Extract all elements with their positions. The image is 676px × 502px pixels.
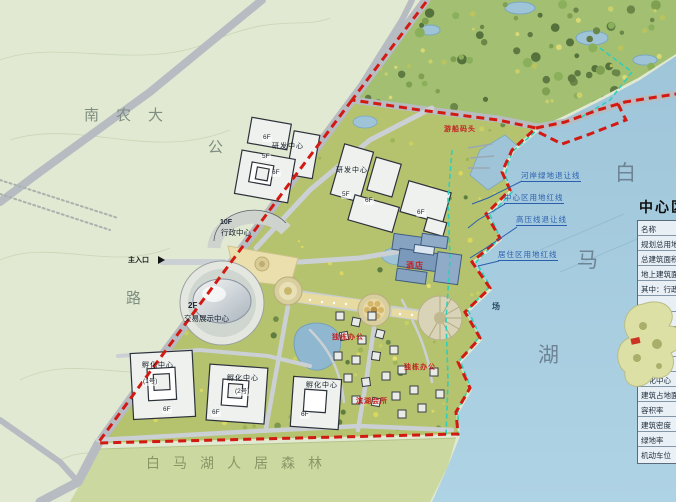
center-redline-label: 中心区用地红线 <box>504 194 564 204</box>
indicator-row: 总建筑面积 <box>638 251 676 266</box>
main-entrance-label: 主入口 <box>128 257 149 264</box>
plaza-label: 场 <box>492 303 500 311</box>
floor-tag: 6F <box>162 407 172 414</box>
key-map-inset <box>613 296 676 396</box>
hotel-label: 酒店 <box>406 262 424 270</box>
lakefront-plaza <box>418 296 462 340</box>
exhibition-floor-label: 2F <box>188 302 197 310</box>
riverbank-setback-label: 河岸绿地退让线 <box>521 172 581 182</box>
rd-center-a-label: 研发中心 <box>272 143 304 150</box>
roundabout-east <box>358 294 390 326</box>
floor-tag: 6F <box>364 198 374 205</box>
floor-tag: 5F <box>341 192 351 199</box>
floor-tag: 6F <box>271 170 281 177</box>
residential-redline-label: 居住区用地红线 <box>498 251 558 261</box>
rd-center-b-label: 研发中心 <box>336 167 368 174</box>
floor-tag: 5F <box>261 154 271 161</box>
floor-tag: 6F <box>416 210 426 217</box>
incubator-2-no: (2号) <box>234 389 250 396</box>
forest-belt-label: 白马湖人居森林 <box>146 456 335 470</box>
indicator-row: 容积率 <box>638 402 676 417</box>
indicator-row: 名称 <box>638 221 676 236</box>
incubator-1-label: 孵化中心 <box>142 362 174 369</box>
incubator-2-label: 孵化中心 <box>227 375 259 382</box>
indicator-row: 建筑密度 <box>638 417 676 432</box>
dock-label: 游船码头 <box>444 126 476 133</box>
map-artwork <box>0 0 676 502</box>
exhibition-name-label: 交易展示中心 <box>184 315 229 323</box>
label-road-gong: 公 <box>208 140 223 155</box>
villa-zone-label-b: 独栋办公 <box>404 364 436 371</box>
floor-tag: 6F <box>262 135 272 142</box>
admin-floor-label: 10F <box>220 219 232 226</box>
hv-setback-label: 高压线退让线 <box>516 216 567 226</box>
indicator-row: 地上建筑面积 <box>638 266 676 281</box>
lake-name-char-1: 白 <box>615 163 636 184</box>
club-label: 滨湖会所 <box>356 398 388 405</box>
indicator-row: 绿地率 <box>638 432 676 447</box>
villa-zone-label-a: 独栋办公 <box>332 334 364 341</box>
roundabout-west <box>274 277 302 305</box>
master-plan-map: 南农大 公 路 主入口 2F 交易展示中心 10F 行政中心 研发中心 研发中心… <box>0 0 676 502</box>
incubator-3-label: 孵化中心 <box>306 382 338 389</box>
indicator-row: 机动车位 <box>638 447 676 462</box>
label-road-lu: 路 <box>126 291 141 306</box>
incubator-1-no: (1号) <box>142 379 158 386</box>
label-nanongda: 南农大 <box>84 108 180 123</box>
floor-tag: 6F <box>300 412 310 419</box>
lake-name-char-2: 马 <box>577 250 598 271</box>
floor-tag: 6F <box>211 410 221 417</box>
north-pond <box>353 116 377 128</box>
indicator-row: 其中：行政中心 <box>638 281 676 296</box>
lake-name-char-3: 湖 <box>538 345 559 366</box>
indicator-row: 规划总用地 <box>638 236 676 251</box>
legend-title: 中心区 <box>639 197 676 217</box>
entrance-arrow-icon <box>158 256 165 264</box>
admin-name-label: 行政中心 <box>221 229 251 237</box>
